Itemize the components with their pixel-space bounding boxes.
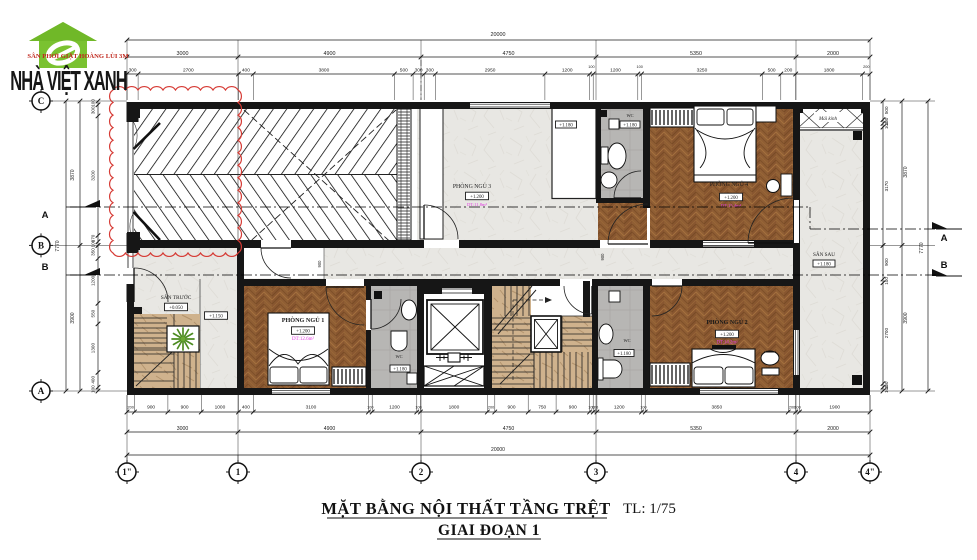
svg-text:+1.180: +1.180: [617, 352, 631, 357]
svg-text:+1.180: +1.180: [559, 124, 573, 129]
svg-text:DT:14.2m²: DT:14.2m²: [716, 340, 738, 346]
svg-text:PHÒNG NGỦ 3: PHÒNG NGỦ 3: [453, 182, 491, 190]
svg-text:1800: 1800: [449, 405, 460, 411]
svg-text:100: 100: [91, 99, 96, 107]
svg-text:3100: 3100: [306, 405, 317, 411]
svg-text:WC: WC: [626, 113, 633, 118]
svg-text:7770: 7770: [919, 242, 925, 253]
svg-text:900: 900: [181, 405, 189, 411]
svg-text:C: C: [38, 96, 45, 106]
svg-text:400: 400: [242, 405, 250, 411]
svg-text:3900: 3900: [903, 312, 909, 323]
svg-text:900: 900: [507, 405, 515, 411]
svg-text:3200: 3200: [91, 170, 96, 181]
svg-text:1000: 1000: [215, 405, 226, 411]
svg-text:1: 1: [236, 467, 241, 477]
svg-text:2000: 2000: [827, 426, 839, 432]
svg-text:5350: 5350: [690, 51, 702, 57]
svg-text:100: 100: [592, 406, 598, 410]
svg-text:400: 400: [91, 376, 96, 384]
svg-text:A: A: [38, 386, 45, 396]
svg-text:2700: 2700: [884, 328, 889, 339]
svg-text:1200: 1200: [562, 68, 573, 74]
svg-text:+0.050: +0.050: [169, 306, 183, 311]
svg-text:PHÒNG NGỦ 1: PHÒNG NGỦ 1: [282, 316, 325, 324]
svg-text:3250: 3250: [697, 68, 708, 74]
svg-text:100: 100: [367, 406, 373, 410]
svg-text:300: 300: [129, 68, 137, 74]
svg-text:300: 300: [91, 106, 96, 114]
svg-text:+1.200: +1.200: [470, 195, 484, 200]
svg-text:4900: 4900: [324, 51, 336, 57]
svg-text:1300: 1300: [91, 343, 96, 354]
svg-text:+1.200: +1.200: [724, 196, 738, 201]
svg-text:1900: 1900: [829, 405, 840, 411]
svg-text:GIAI ĐOẠN 1: GIAI ĐOẠN 1: [438, 522, 540, 539]
svg-text:300: 300: [426, 68, 434, 74]
svg-text:3000: 3000: [177, 426, 189, 432]
svg-text:+1.180: +1.180: [393, 368, 407, 373]
svg-text:100: 100: [794, 406, 800, 410]
svg-text:DT:12.6m²: DT:12.6m²: [292, 336, 314, 342]
svg-text:1": 1": [122, 467, 132, 477]
svg-text:200: 200: [863, 65, 869, 69]
svg-text:WC: WC: [395, 354, 402, 359]
svg-text:100: 100: [884, 121, 889, 129]
svg-text:900: 900: [569, 405, 577, 411]
svg-text:3170: 3170: [884, 181, 889, 192]
svg-text:750: 750: [538, 405, 546, 411]
svg-text:NHÀ VIỆT XANH: NHÀ VIỆT XANH: [10, 65, 127, 97]
svg-text:100: 100: [884, 385, 889, 393]
svg-text:4750: 4750: [503, 426, 515, 432]
svg-text:SÂN PHƠI GIẶT HOÀNG LÙI 3M: SÂN PHƠI GIẶT HOÀNG LÙI 3M: [27, 52, 129, 60]
svg-text:500: 500: [884, 106, 889, 114]
svg-text:B: B: [38, 241, 44, 251]
svg-text:100: 100: [91, 385, 96, 393]
svg-text:3870: 3870: [70, 169, 76, 180]
svg-text:+1.200: +1.200: [720, 333, 734, 338]
svg-text:20000: 20000: [491, 32, 506, 38]
svg-text:3000: 3000: [177, 51, 189, 57]
svg-text:SÂN SAU: SÂN SAU: [813, 250, 835, 258]
svg-text:1200: 1200: [614, 405, 625, 411]
svg-text:5350: 5350: [690, 426, 702, 432]
svg-text:4": 4": [865, 467, 875, 477]
svg-text:PHÒNG NGỦ 2: PHÒNG NGỦ 2: [706, 318, 747, 326]
svg-text:3: 3: [594, 467, 599, 477]
svg-text:900: 900: [884, 258, 889, 266]
svg-text:+1.180: +1.180: [817, 263, 831, 268]
svg-text:200: 200: [488, 406, 494, 410]
svg-text:3900: 3900: [70, 312, 76, 323]
svg-text:3850: 3850: [711, 405, 722, 411]
svg-text:2950: 2950: [485, 68, 496, 74]
svg-text:+1.180: +1.180: [623, 124, 637, 129]
svg-text:2000: 2000: [827, 51, 839, 57]
svg-text:100: 100: [637, 65, 643, 69]
svg-text:2: 2: [419, 467, 424, 477]
svg-text:A: A: [941, 233, 948, 244]
svg-text:3870: 3870: [903, 166, 909, 177]
svg-text:200: 200: [128, 406, 134, 410]
svg-text:400: 400: [242, 68, 250, 74]
svg-text:300: 300: [415, 68, 423, 74]
svg-text:900: 900: [317, 260, 322, 268]
svg-text:4750: 4750: [503, 51, 515, 57]
svg-text:MẶT BẰNG NỘI THẤT TẦNG TRỆT: MẶT BẰNG NỘI THẤT TẦNG TRỆT: [321, 499, 610, 518]
svg-text:500: 500: [400, 68, 408, 74]
svg-text:100: 100: [884, 277, 889, 285]
svg-text:500: 500: [768, 68, 776, 74]
svg-text:3800: 3800: [319, 68, 330, 74]
svg-text:B: B: [941, 260, 948, 271]
svg-text:20000: 20000: [491, 447, 505, 453]
svg-text:SÂN TRƯỚC: SÂN TRƯỚC: [161, 293, 192, 301]
svg-text:PHÒNG NGỦ 4: PHÒNG NGỦ 4: [710, 180, 748, 188]
svg-text:4900: 4900: [324, 426, 336, 432]
svg-text:550: 550: [91, 309, 96, 317]
svg-text:WC: WC: [623, 338, 630, 343]
svg-text:DT:11.8m²: DT:11.8m²: [467, 202, 488, 207]
svg-text:1200: 1200: [389, 405, 400, 411]
svg-text:+1.200: +1.200: [296, 330, 310, 335]
svg-text:100: 100: [588, 65, 594, 69]
svg-text:4: 4: [794, 467, 799, 477]
svg-text:+1.150: +1.150: [209, 315, 223, 320]
svg-text:A: A: [42, 210, 49, 221]
svg-text:TL: 1/75: TL: 1/75: [623, 501, 676, 517]
svg-text:1200: 1200: [610, 68, 621, 74]
svg-text:1800: 1800: [824, 68, 835, 74]
svg-text:900: 900: [600, 253, 605, 261]
svg-text:100: 100: [640, 406, 646, 410]
svg-text:1200: 1200: [91, 275, 96, 286]
svg-text:200: 200: [784, 68, 792, 74]
svg-text:100: 100: [91, 239, 96, 247]
svg-text:B: B: [42, 262, 49, 273]
svg-text:900: 900: [147, 405, 155, 411]
svg-text:350: 350: [91, 248, 96, 256]
svg-text:7770: 7770: [55, 240, 61, 251]
svg-text:2700: 2700: [183, 68, 194, 74]
svg-text:Mái kính: Mái kính: [818, 117, 837, 122]
